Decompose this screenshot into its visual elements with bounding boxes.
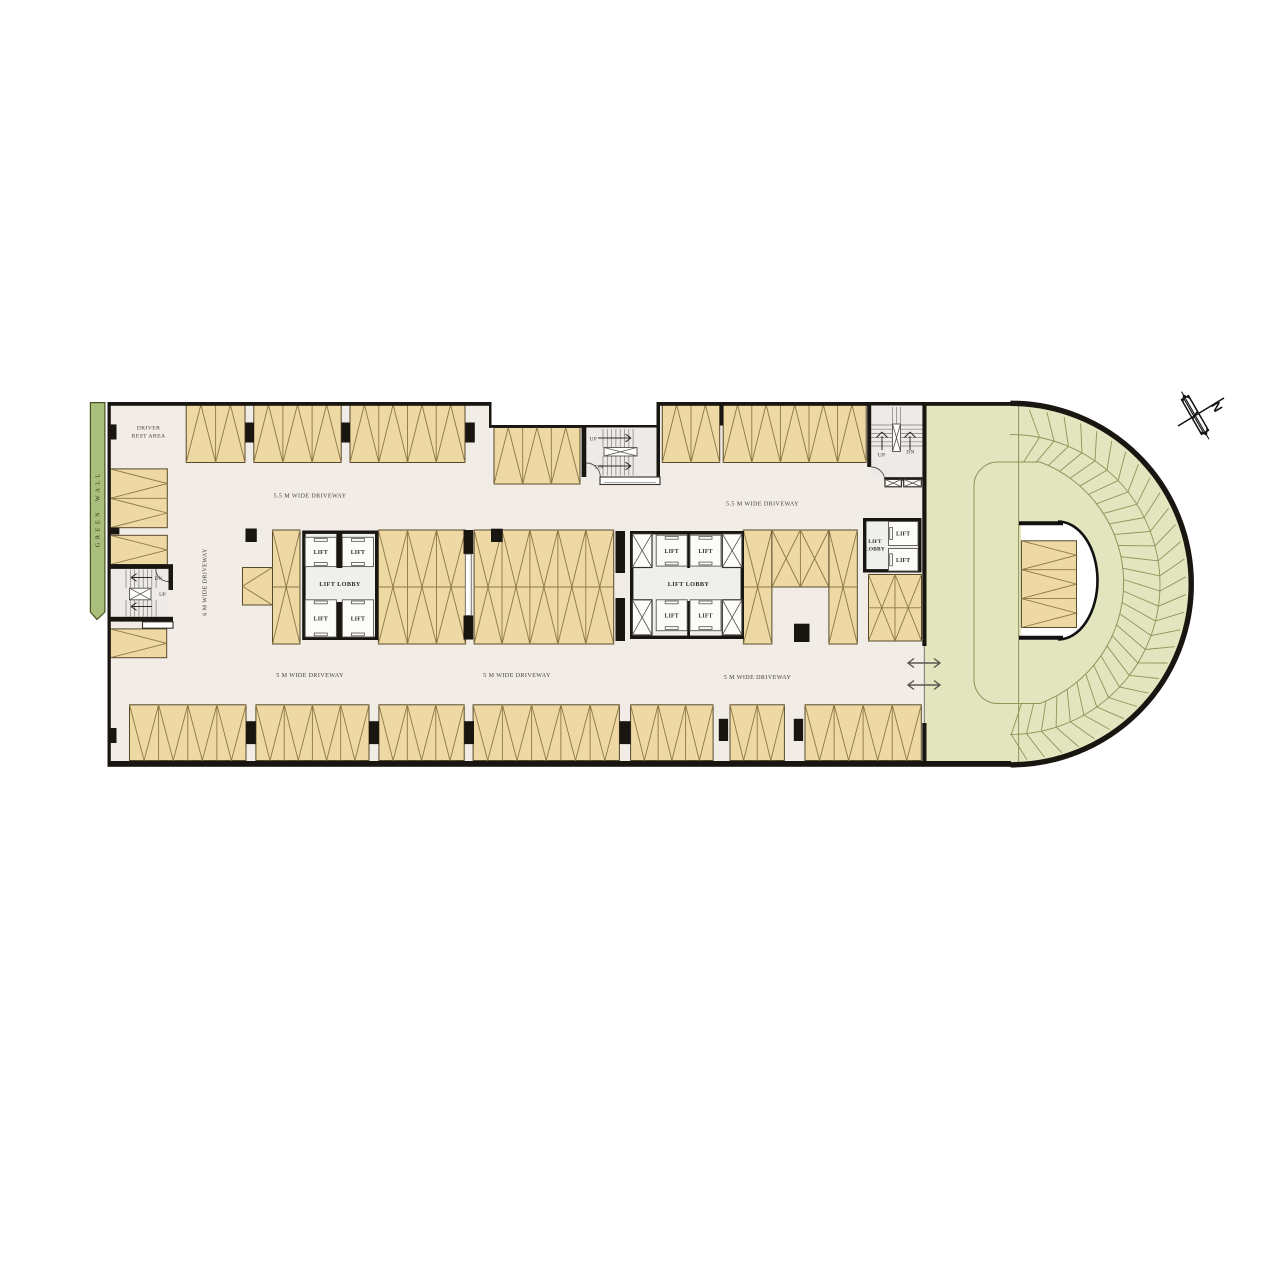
- svg-text:LIFT: LIFT: [896, 532, 910, 538]
- svg-text:LIFT LOBBY: LIFT LOBBY: [668, 581, 710, 588]
- svg-text:LIFT: LIFT: [314, 617, 328, 623]
- svg-text:DRIVER: DRIVER: [137, 426, 161, 432]
- svg-text:LIFT: LIFT: [351, 617, 365, 623]
- svg-text:LIFT: LIFT: [351, 550, 365, 556]
- svg-text:LIFT: LIFT: [698, 549, 712, 555]
- svg-text:LIFT: LIFT: [698, 614, 712, 620]
- svg-text:UP: UP: [878, 453, 886, 459]
- svg-text:6 M WIDE DRIVEWAY: 6 M WIDE DRIVEWAY: [203, 548, 209, 616]
- svg-text:LIFT: LIFT: [665, 614, 679, 620]
- svg-text:5.5 M WIDE DRIVEWAY: 5.5 M WIDE DRIVEWAY: [726, 502, 799, 508]
- svg-text:LOBBY: LOBBY: [865, 547, 885, 553]
- svg-text:LIFT: LIFT: [896, 558, 910, 564]
- svg-text:G R E E N W A L L: G R E E N W A L L: [95, 473, 102, 547]
- svg-text:DN: DN: [906, 450, 914, 456]
- svg-text:5 M WIDE DRIVEWAY: 5 M WIDE DRIVEWAY: [276, 673, 344, 679]
- svg-text:LIFT: LIFT: [665, 549, 679, 555]
- svg-text:UP: UP: [159, 592, 166, 598]
- svg-text:UP: UP: [589, 436, 597, 442]
- svg-text:5.5 M WIDE DRIVEWAY: 5.5 M WIDE DRIVEWAY: [274, 494, 347, 500]
- svg-text:LIFT: LIFT: [314, 550, 328, 556]
- svg-text:5 M WIDE DRIVEWAY: 5 M WIDE DRIVEWAY: [724, 675, 792, 681]
- svg-text:REST AREA: REST AREA: [132, 434, 166, 440]
- svg-text:5 M WIDE DRIVEWAY: 5 M WIDE DRIVEWAY: [483, 673, 551, 679]
- svg-text:LIFT: LIFT: [868, 539, 882, 545]
- svg-text:LIFT LOBBY: LIFT LOBBY: [319, 581, 361, 588]
